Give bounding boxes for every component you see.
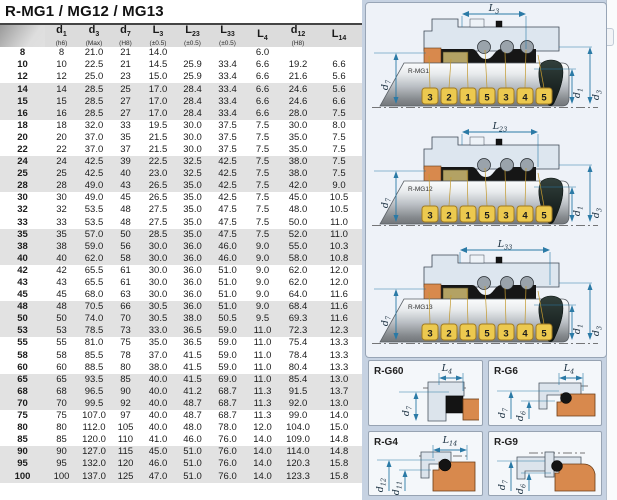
table-row: 333353.54827.535.047.57.550.011.0 [0, 217, 362, 229]
value-cell: 70.5 [78, 301, 110, 313]
size-cell: 42 [0, 265, 45, 277]
value-cell: 14 [45, 83, 78, 95]
size-cell: 55 [0, 337, 45, 349]
left-dim-label: d7 [380, 197, 393, 208]
callout-number: 5 [541, 329, 547, 340]
size-cell: 18 [0, 120, 45, 132]
value-cell: 61 [110, 277, 141, 289]
drive-pin [496, 139, 502, 145]
value-cell: 14.8 [316, 434, 362, 446]
value-cell: 73 [110, 325, 141, 337]
column-header: L33(±0.5) [210, 25, 245, 47]
right-dim-inner-label: d1 [572, 206, 585, 216]
value-cell: 21 [110, 59, 141, 71]
table-row: 404062.05830.036.046.09.058.010.8 [0, 253, 362, 265]
value-cell: 10.3 [316, 241, 362, 253]
callout-number: 4 [522, 211, 528, 222]
seat-ring [424, 166, 441, 181]
value-cell: 85 [110, 374, 141, 386]
value-cell: 120.3 [280, 458, 316, 470]
drive-pin [496, 257, 502, 263]
table-row: 9090127.011545.051.076.014.0114.014.8 [0, 446, 362, 458]
value-cell: 36.0 [175, 241, 210, 253]
value-cell: 6.6 [316, 59, 362, 71]
callout-number: 5 [484, 211, 490, 222]
callout-number: 1 [465, 329, 471, 340]
value-cell: 78 [110, 350, 141, 362]
value-cell: 96.5 [78, 386, 110, 398]
value-cell: 20 [45, 132, 78, 144]
value-cell: 11.0 [245, 374, 280, 386]
value-cell: 100 [45, 470, 78, 482]
value-cell: 21.5 [141, 144, 175, 156]
value-cell: 80.4 [280, 362, 316, 374]
value-cell: 68.7 [210, 410, 245, 422]
value-cell: 6.0 [245, 47, 280, 59]
top-dim-label: L14 [442, 435, 458, 448]
callout-number: 4 [522, 93, 528, 104]
value-cell: 13.3 [316, 350, 362, 362]
column-header: L14 [316, 25, 362, 47]
value-cell: 50.5 [210, 313, 245, 325]
value-cell: 74.0 [78, 313, 110, 325]
value-cell: 85 [45, 434, 78, 446]
size-cell: 50 [0, 313, 45, 325]
value-cell: 26.5 [141, 180, 175, 192]
value-cell: 58 [45, 350, 78, 362]
value-cell: 41.5 [175, 362, 210, 374]
table-row: 9595132.012046.051.076.014.0120.315.8 [0, 458, 362, 470]
table-row: 424265.56130.036.051.09.062.012.0 [0, 265, 362, 277]
value-cell: 6.6 [316, 96, 362, 108]
value-cell: 63 [110, 289, 141, 301]
value-cell: 30.0 [175, 132, 210, 144]
value-cell: 17.0 [141, 83, 175, 95]
value-cell: 52.0 [280, 229, 316, 241]
value-cell: 59.0 [210, 350, 245, 362]
value-cell: 25 [45, 168, 78, 180]
springs [478, 41, 534, 54]
value-cell: 53.5 [78, 204, 110, 216]
value-cell: 62.0 [280, 277, 316, 289]
table-row: 505074.07030.538.050.59.569.311.6 [0, 313, 362, 325]
value-cell: 17.0 [141, 96, 175, 108]
value-cell: 28 [45, 180, 78, 192]
table-row: 282849.04326.535.042.57.542.09.0 [0, 180, 362, 192]
value-cell: 132.0 [78, 458, 110, 470]
seat-ring [424, 48, 441, 63]
value-cell: 21.0 [78, 47, 110, 59]
gland-housing [424, 19, 559, 51]
value-cell: 7.5 [316, 168, 362, 180]
value-cell: 12 [45, 71, 78, 83]
seal-diagram: R-MG13 3 2 [366, 239, 604, 357]
value-cell: 68.7 [210, 386, 245, 398]
size-cell: 14 [0, 83, 45, 95]
table-row: 484870.56630.536.051.09.068.411.6 [0, 301, 362, 313]
value-cell: 11.0 [245, 325, 280, 337]
value-cell: 48 [45, 301, 78, 313]
value-cell: 35.0 [175, 180, 210, 192]
value-cell: 21.6 [280, 71, 316, 83]
column-header: d1(h6) [45, 25, 78, 47]
dimension-sheet: R-MG1 / MG12 / MG13 d1(h6)d3(Max)d7(H8)L… [0, 0, 362, 500]
table-row: 101022.52114.525.933.46.619.26.6 [0, 59, 362, 71]
callout-chain: 3 2 1 5 3 4 5 [422, 324, 552, 340]
callout-number: 3 [427, 329, 432, 340]
value-cell: 16 [45, 108, 78, 120]
value-cell: 75.4 [280, 337, 316, 349]
table-row: 535378.57333.036.559.011.072.312.3 [0, 325, 362, 337]
value-cell: 40.0 [141, 410, 175, 422]
size-cell: 35 [0, 229, 45, 241]
value-cell: 56 [110, 241, 141, 253]
value-cell: 11.3 [245, 386, 280, 398]
value-cell: 5.6 [316, 83, 362, 95]
value-cell: 127.0 [78, 446, 110, 458]
value-cell: 45.0 [141, 446, 175, 458]
value-cell: 27 [110, 108, 141, 120]
table-body: 8821.02114.06.0101022.52114.525.933.46.6… [0, 47, 362, 482]
value-cell: 9.0 [245, 301, 280, 313]
value-cell: 42 [45, 265, 78, 277]
size-cell: 70 [0, 398, 45, 410]
value-cell: 9.0 [245, 277, 280, 289]
size-cell: 28 [0, 180, 45, 192]
value-cell: 25.9 [175, 71, 210, 83]
value-cell: 42.0 [280, 180, 316, 192]
table-row: 323253.54827.535.047.57.548.010.5 [0, 204, 362, 216]
seat-elastomer-cup [446, 396, 463, 413]
value-cell: 40 [110, 168, 141, 180]
value-cell: 9.0 [245, 241, 280, 253]
value-cell: 91.5 [280, 386, 316, 398]
value-cell: 30 [45, 192, 78, 204]
seal-diagram: R-MG12 3 2 [366, 121, 604, 239]
value-cell: 48.0 [280, 204, 316, 216]
value-cell: 7.5 [316, 156, 362, 168]
callout-number: 3 [503, 93, 508, 104]
table-row: 8821.02114.06.0 [0, 47, 362, 59]
value-cell: 36.0 [175, 253, 210, 265]
set-screw-slot [470, 19, 484, 27]
value-cell: 32 [45, 204, 78, 216]
value-cell: 37.5 [210, 120, 245, 132]
value-cell: 30.0 [141, 253, 175, 265]
value-cell: 33.4 [210, 108, 245, 120]
size-cell: 38 [0, 241, 45, 253]
value-cell: 40.0 [141, 422, 175, 434]
size-cell: 75 [0, 410, 45, 422]
value-cell: 42.5 [210, 168, 245, 180]
seal-diagram: R-MG1 3 2 [366, 3, 604, 121]
value-cell: 50 [110, 229, 141, 241]
callout-number: 5 [484, 93, 490, 104]
size-cell: 58 [0, 350, 45, 362]
value-cell: 65.5 [78, 277, 110, 289]
value-cell: 25.0 [78, 71, 110, 83]
size-cell: 22 [0, 144, 45, 156]
value-cell: 38 [45, 241, 78, 253]
value-cell: 28.5 [141, 229, 175, 241]
value-cell: 45 [110, 192, 141, 204]
value-cell: 23.0 [141, 168, 175, 180]
table-row: 100100137.012547.051.076.014.0123.315.8 [0, 470, 362, 482]
value-cell: 46.0 [175, 434, 210, 446]
column-header: d3(Max) [78, 25, 110, 47]
value-cell: 80 [45, 422, 78, 434]
value-cell: 41.0 [141, 434, 175, 446]
value-cell: 15.8 [316, 458, 362, 470]
column-header: L23(±0.5) [175, 25, 210, 47]
value-cell: 28.4 [175, 108, 210, 120]
size-cell: 65 [0, 374, 45, 386]
value-cell: 36.0 [175, 301, 210, 313]
value-cell: 68.7 [210, 398, 245, 410]
value-cell: 33.4 [210, 83, 245, 95]
table-row: 8080112.010540.048.078.012.0104.015.0 [0, 422, 362, 434]
top-dim-label: L3 [488, 3, 499, 16]
value-cell: 32.5 [175, 156, 210, 168]
size-cell: 90 [0, 446, 45, 458]
value-cell: 50.0 [280, 217, 316, 229]
value-cell: 59.0 [210, 325, 245, 337]
size-cell: 100 [0, 470, 45, 482]
top-dim-label: L4 [562, 363, 573, 376]
value-cell: 53.5 [78, 217, 110, 229]
value-cell: 15.8 [316, 470, 362, 482]
value-cell: 51.0 [175, 470, 210, 482]
callout-number: 3 [503, 211, 508, 222]
value-cell: 70 [110, 313, 141, 325]
value-cell: 33 [45, 217, 78, 229]
value-cell: 41.5 [175, 350, 210, 362]
size-cell: 20 [0, 132, 45, 144]
size-cell: 85 [0, 434, 45, 446]
callout-number: 5 [484, 329, 490, 340]
value-cell: 9.0 [316, 180, 362, 192]
left-dim-label-2: d6 [515, 411, 528, 421]
value-cell: 41.5 [175, 374, 210, 386]
value-cell: 72.3 [280, 325, 316, 337]
value-cell: 33.0 [141, 325, 175, 337]
value-cell: 47.5 [210, 229, 245, 241]
value-cell [280, 47, 316, 59]
callout-chain: 3 2 1 5 3 4 5 [422, 206, 552, 222]
value-cell: 51.0 [175, 446, 210, 458]
value-cell: 7.5 [245, 180, 280, 192]
seat-drawing: R-G60 L4 [369, 361, 479, 425]
callout-number: 2 [446, 211, 451, 222]
value-cell: 114.0 [280, 446, 316, 458]
value-cell: 51.0 [210, 265, 245, 277]
right-dim-inner-label: d1 [572, 88, 585, 98]
value-cell: 25.9 [175, 59, 210, 71]
value-cell: 7.5 [316, 132, 362, 144]
value-cell: 47.0 [141, 470, 175, 482]
value-cell: 110 [110, 434, 141, 446]
value-cell: 6.6 [245, 108, 280, 120]
value-cell: 99.0 [280, 410, 316, 422]
value-cell: 7.5 [245, 192, 280, 204]
table-row: 252542.54023.032.542.57.538.07.5 [0, 168, 362, 180]
value-cell: 85.5 [78, 350, 110, 362]
column-header: d12(H8) [280, 25, 316, 47]
top-dim-label: L23 [492, 121, 508, 134]
size-cell: 53 [0, 325, 45, 337]
value-cell: 115 [110, 446, 141, 458]
size-cell: 40 [0, 253, 45, 265]
seal-cross-section: R-MG12 3 2 [366, 121, 604, 239]
value-cell: 50 [45, 313, 78, 325]
callout-number: 1 [465, 211, 471, 222]
value-cell: 28.5 [78, 96, 110, 108]
value-cell: 40.0 [141, 374, 175, 386]
value-cell: 36.5 [175, 325, 210, 337]
value-cell: 48 [110, 204, 141, 216]
value-cell: 76.0 [210, 446, 245, 458]
value-cell: 69.3 [280, 313, 316, 325]
right-dim-outer-label: d3 [591, 90, 604, 100]
value-cell: 58.0 [280, 253, 316, 265]
size-cell: 95 [0, 458, 45, 470]
value-cell: 27 [110, 96, 141, 108]
seal-cross-section: R-MG13 3 2 [366, 239, 604, 357]
value-cell: 33 [110, 120, 141, 132]
table-row: 161628.52717.028.433.46.628.07.5 [0, 108, 362, 120]
value-cell: 81.0 [78, 337, 110, 349]
value-cell: 14.5 [141, 59, 175, 71]
size-cell: 30 [0, 192, 45, 204]
callout-number: 1 [465, 93, 471, 104]
size-cell: 10 [0, 59, 45, 71]
value-cell: 14.0 [245, 470, 280, 482]
seal-face [443, 52, 468, 63]
value-cell: 39 [110, 156, 141, 168]
value-cell: 40 [45, 253, 78, 265]
seal-face [443, 170, 468, 181]
size-cell: 45 [0, 289, 45, 301]
value-cell: 66 [110, 301, 141, 313]
value-cell: 68.0 [78, 289, 110, 301]
value-cell: 19.2 [280, 59, 316, 71]
left-dim-label: d7 [497, 479, 510, 490]
value-cell: 104.0 [280, 422, 316, 434]
value-cell: 33.4 [210, 71, 245, 83]
corner-cell [0, 25, 45, 47]
page-title: R-MG1 / MG12 / MG13 [0, 0, 362, 25]
value-cell: 76.0 [210, 470, 245, 482]
seat-drawing: R-G9 d7 d6 [489, 432, 599, 496]
value-cell: 42.5 [210, 180, 245, 192]
value-cell: 11.3 [245, 398, 280, 410]
top-dim-label: L33 [497, 239, 513, 252]
value-cell: 5.6 [316, 71, 362, 83]
size-cell: 80 [0, 422, 45, 434]
value-cell: 37.5 [210, 132, 245, 144]
value-cell: 109.0 [280, 434, 316, 446]
table-row: 454568.06330.036.051.09.064.011.6 [0, 289, 362, 301]
value-cell: 68 [45, 386, 78, 398]
value-cell: 11.6 [316, 301, 362, 313]
value-cell: 30.0 [141, 265, 175, 277]
value-cell: 30.0 [141, 277, 175, 289]
value-cell: 48 [110, 217, 141, 229]
top-dim-head-left [462, 11, 469, 17]
value-cell: 14.0 [245, 446, 280, 458]
size-cell: 68 [0, 386, 45, 398]
value-cell: 137.0 [78, 470, 110, 482]
table-row: 151528.52717.028.433.46.624.66.6 [0, 96, 362, 108]
set-screw-slot [470, 137, 484, 145]
value-cell: 6.6 [245, 71, 280, 83]
top-dim-head-left [460, 247, 467, 253]
value-cell: 28.5 [78, 83, 110, 95]
value-cell: 38.0 [141, 362, 175, 374]
table-row: 686896.59040.041.268.711.391.513.7 [0, 386, 362, 398]
diagram-label: R-MG1 [408, 68, 429, 75]
value-cell: 37.0 [78, 144, 110, 156]
left-dimension: d7 d6 [497, 391, 559, 421]
value-cell: 24.6 [280, 96, 316, 108]
catalog-page: R-MG1 / MG12 / MG13 d1(h6)d3(Max)d7(H8)L… [0, 0, 617, 500]
value-cell: 24.6 [280, 83, 316, 95]
dimension-table: d1(h6)d3(Max)d7(H8)L3(±0.5)L23(±0.5)L33(… [0, 25, 362, 483]
value-cell: 78.0 [210, 422, 245, 434]
table-row: 606088.58038.041.559.011.080.413.3 [0, 362, 362, 374]
value-cell: 11.0 [316, 229, 362, 241]
value-cell: 15 [45, 96, 78, 108]
drive-pin [496, 21, 502, 27]
table-row: 222237.03721.530.037.57.535.07.5 [0, 144, 362, 156]
value-cell: 92 [110, 398, 141, 410]
left-dim-label: d7 [380, 79, 393, 90]
value-cell: 57.0 [78, 229, 110, 241]
value-cell: 28.4 [175, 83, 210, 95]
value-cell: 38.0 [175, 313, 210, 325]
value-cell: 35.0 [175, 229, 210, 241]
gland-housing [424, 255, 559, 287]
size-cell: 43 [0, 277, 45, 289]
seat-variant-label: R-G4 [374, 437, 398, 448]
value-cell: 14.0 [316, 410, 362, 422]
value-cell: 92.0 [280, 398, 316, 410]
value-cell: 13.3 [316, 362, 362, 374]
value-cell: 28.4 [175, 96, 210, 108]
size-cell: 15 [0, 96, 45, 108]
value-cell: 11.3 [245, 410, 280, 422]
value-cell: 125 [110, 470, 141, 482]
value-cell: 75 [110, 337, 141, 349]
value-cell: 30.0 [141, 241, 175, 253]
value-cell: 19.5 [141, 120, 175, 132]
value-cell: 7.5 [245, 229, 280, 241]
size-cell: 24 [0, 156, 45, 168]
value-cell: 62.0 [280, 265, 316, 277]
column-header: L4 [245, 25, 280, 47]
value-cell: 30.0 [141, 289, 175, 301]
value-cell: 12.0 [316, 265, 362, 277]
value-cell: 76.0 [210, 434, 245, 446]
value-cell: 33.4 [210, 96, 245, 108]
value-cell: 35.0 [175, 204, 210, 216]
value-cell: 11.6 [316, 313, 362, 325]
value-cell: 11.0 [316, 217, 362, 229]
left-dim-label: d7 [497, 407, 510, 418]
value-cell: 7.5 [316, 108, 362, 120]
top-dim-head-right [531, 129, 538, 135]
callout-number: 5 [541, 211, 547, 222]
